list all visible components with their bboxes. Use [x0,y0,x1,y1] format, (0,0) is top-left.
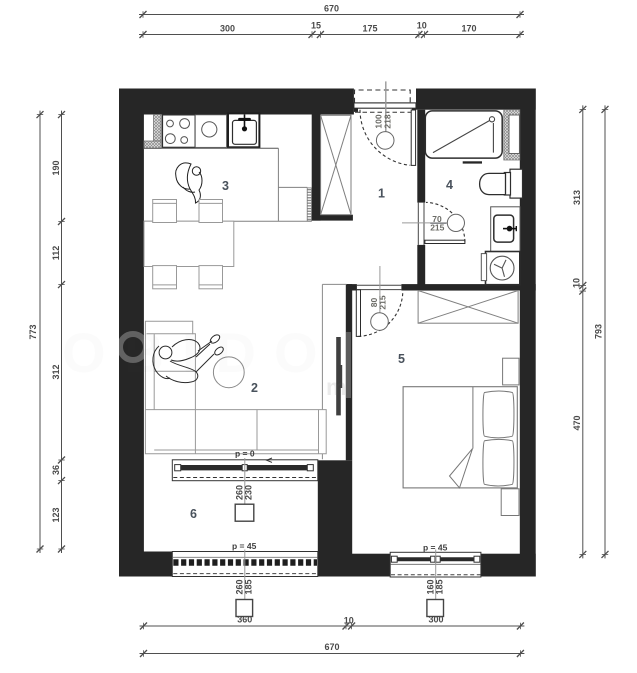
svg-text:36: 36 [51,465,61,475]
svg-text:112: 112 [51,246,61,261]
svg-text:175: 175 [362,24,377,34]
svg-text:230: 230 [244,485,254,500]
svg-text:1: 1 [378,187,385,201]
svg-text:670: 670 [324,4,339,14]
svg-text:670: 670 [324,642,339,652]
svg-text:215: 215 [430,222,444,232]
svg-text:300: 300 [220,24,235,34]
svg-text:313: 313 [572,190,582,205]
svg-text:170: 170 [461,24,476,34]
svg-text:312: 312 [51,364,61,379]
svg-text:6: 6 [190,507,197,521]
svg-text:4: 4 [446,178,453,192]
svg-text:470: 470 [572,415,582,430]
svg-text:360: 360 [237,615,252,625]
svg-text:3: 3 [222,179,229,193]
svg-text:218: 218 [383,114,393,128]
svg-text:190: 190 [51,160,61,175]
svg-text:10: 10 [417,21,427,31]
svg-text:185: 185 [244,579,254,594]
svg-text:10: 10 [572,278,582,288]
svg-text:773: 773 [28,324,38,339]
svg-text:185: 185 [435,579,445,594]
svg-text:123: 123 [51,507,61,522]
svg-text:5: 5 [398,352,405,366]
svg-text:OBIDO: OBIDO [62,321,336,384]
svg-text:793: 793 [594,324,604,339]
svg-text:p = 0: p = 0 [235,449,255,459]
svg-text:15: 15 [311,21,321,31]
svg-text:215: 215 [377,295,387,309]
svg-text:300: 300 [428,615,443,625]
svg-text:10: 10 [344,616,354,626]
